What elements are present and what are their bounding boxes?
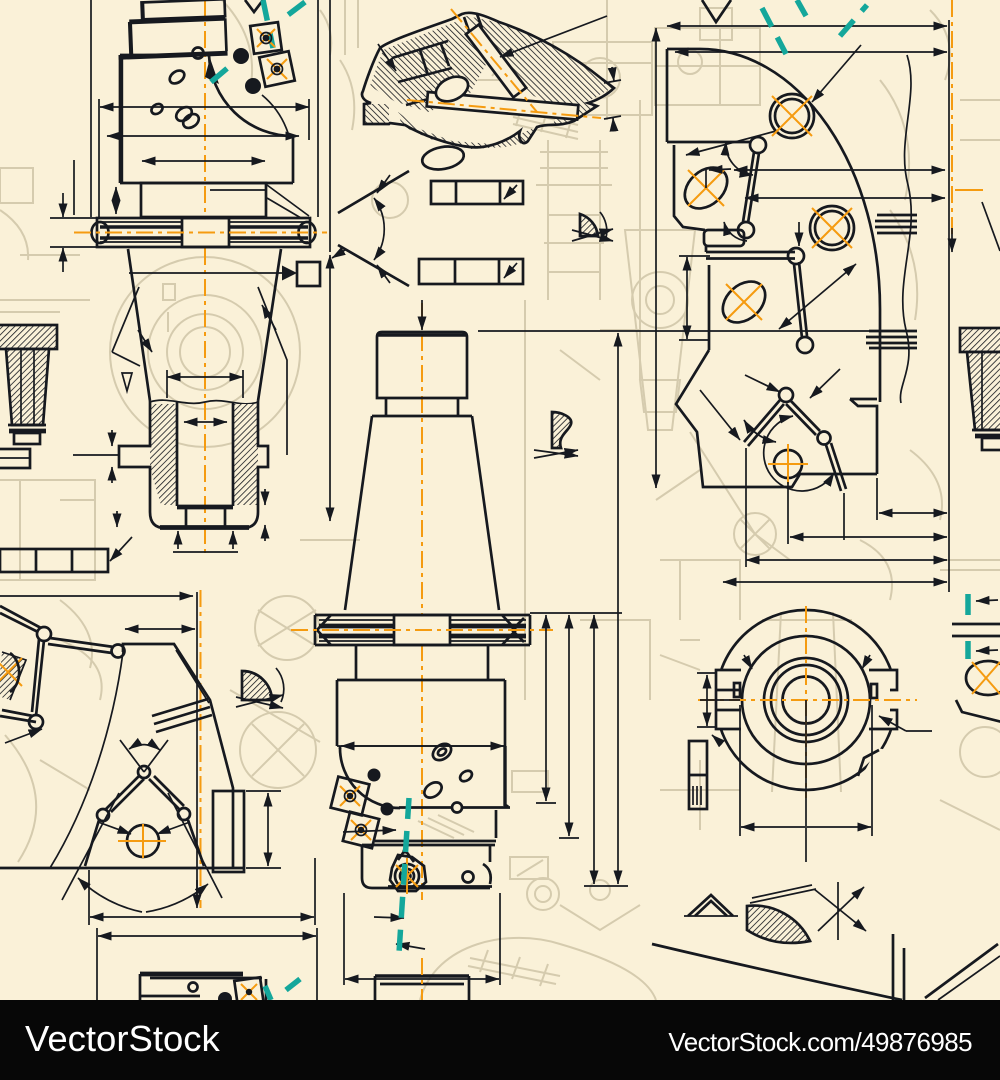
svg-text:VectorStock: VectorStock [25, 1018, 221, 1059]
svg-text:VectorStock.com/49876985: VectorStock.com/49876985 [668, 1027, 972, 1057]
